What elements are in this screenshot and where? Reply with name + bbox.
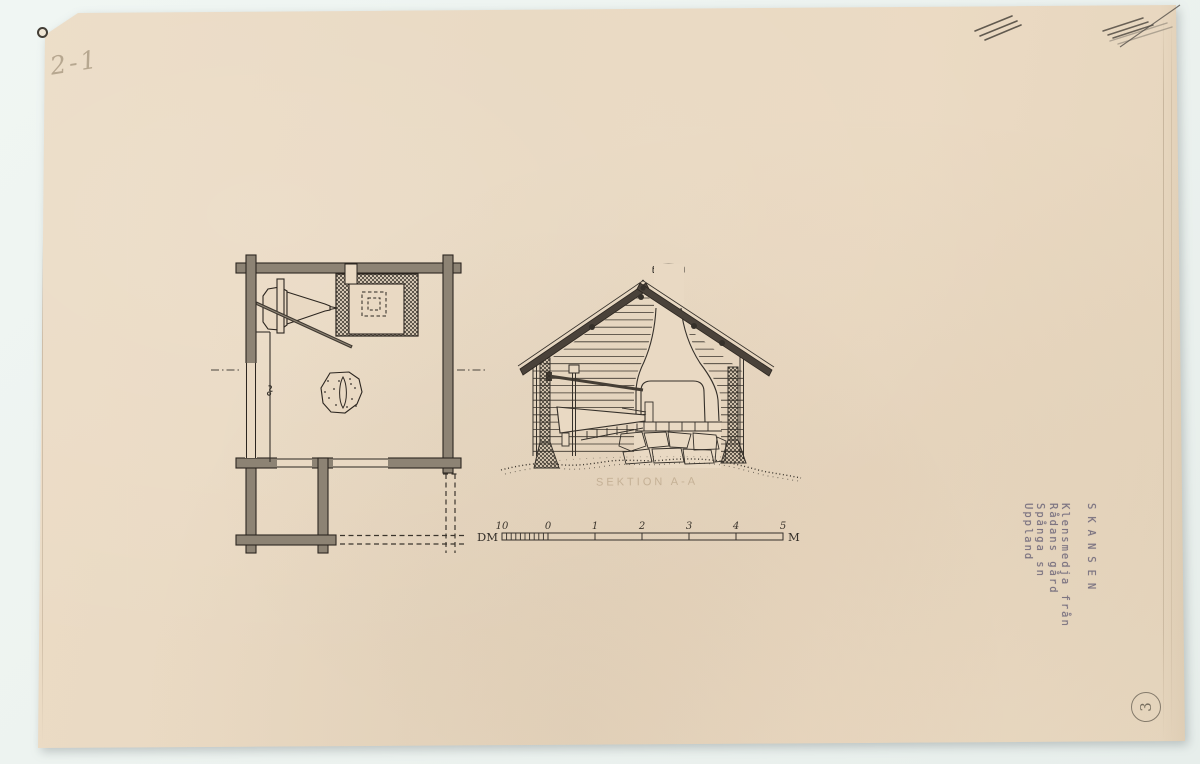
scale-label-0: 0: [545, 521, 552, 532]
plan-dashed-porch: [340, 474, 466, 553]
floor-plan-drawing: [205, 248, 495, 560]
purlin-end: [589, 324, 595, 330]
stamp-title: SKANSEN: [1085, 503, 1098, 643]
scale-label-2: 2: [638, 521, 645, 532]
plan-openings: [245, 363, 388, 469]
section-bellows: [557, 407, 645, 446]
pencil-tally-marks: [960, 3, 1190, 51]
purlin-end: [719, 340, 725, 346]
section-bellows-lever: [546, 372, 643, 390]
scale-label-5: 5: [780, 521, 786, 532]
scale-label-3: 3: [686, 521, 692, 532]
paper-crease-left: [42, 30, 43, 745]
decimeter-ticks: [507, 533, 544, 540]
scale-unit-dm: DM: [477, 530, 498, 544]
purlin-end: [691, 323, 697, 329]
sheet-number: 3: [1137, 702, 1155, 712]
purlin-end: [638, 294, 644, 300]
sheet-number-circle: 3: [1131, 692, 1161, 722]
scale-unit-m: M: [788, 530, 800, 544]
stamp-line: Rådans gård: [1047, 503, 1060, 643]
stamp-line: Klensmedja från: [1059, 503, 1072, 643]
scale-bar: 10 0 1 2 3 4 5 DM M: [480, 516, 800, 550]
plan-door-leaf: [256, 332, 273, 462]
archive-stamp: SKANSEN Klensmedja från Rådans gård Spån…: [1022, 503, 1098, 643]
paper-edge-shade: [1160, 0, 1200, 764]
plan-forge: [336, 264, 418, 336]
scale-label-4: 4: [732, 521, 739, 532]
stamp-line: Spånga sn: [1034, 503, 1047, 643]
scale-label-1: 1: [592, 521, 598, 532]
punch-hole: [37, 27, 48, 38]
archival-photo: { "document": { "pencil_note": "2-1", "s…: [0, 0, 1200, 764]
section-drawing: [495, 250, 805, 490]
plan-anvil-block: [321, 372, 362, 413]
plan-bellows-plank: [277, 279, 284, 333]
section-caption: SEKTION A-A: [596, 475, 736, 488]
stamp-line: Uppland: [1022, 503, 1035, 643]
